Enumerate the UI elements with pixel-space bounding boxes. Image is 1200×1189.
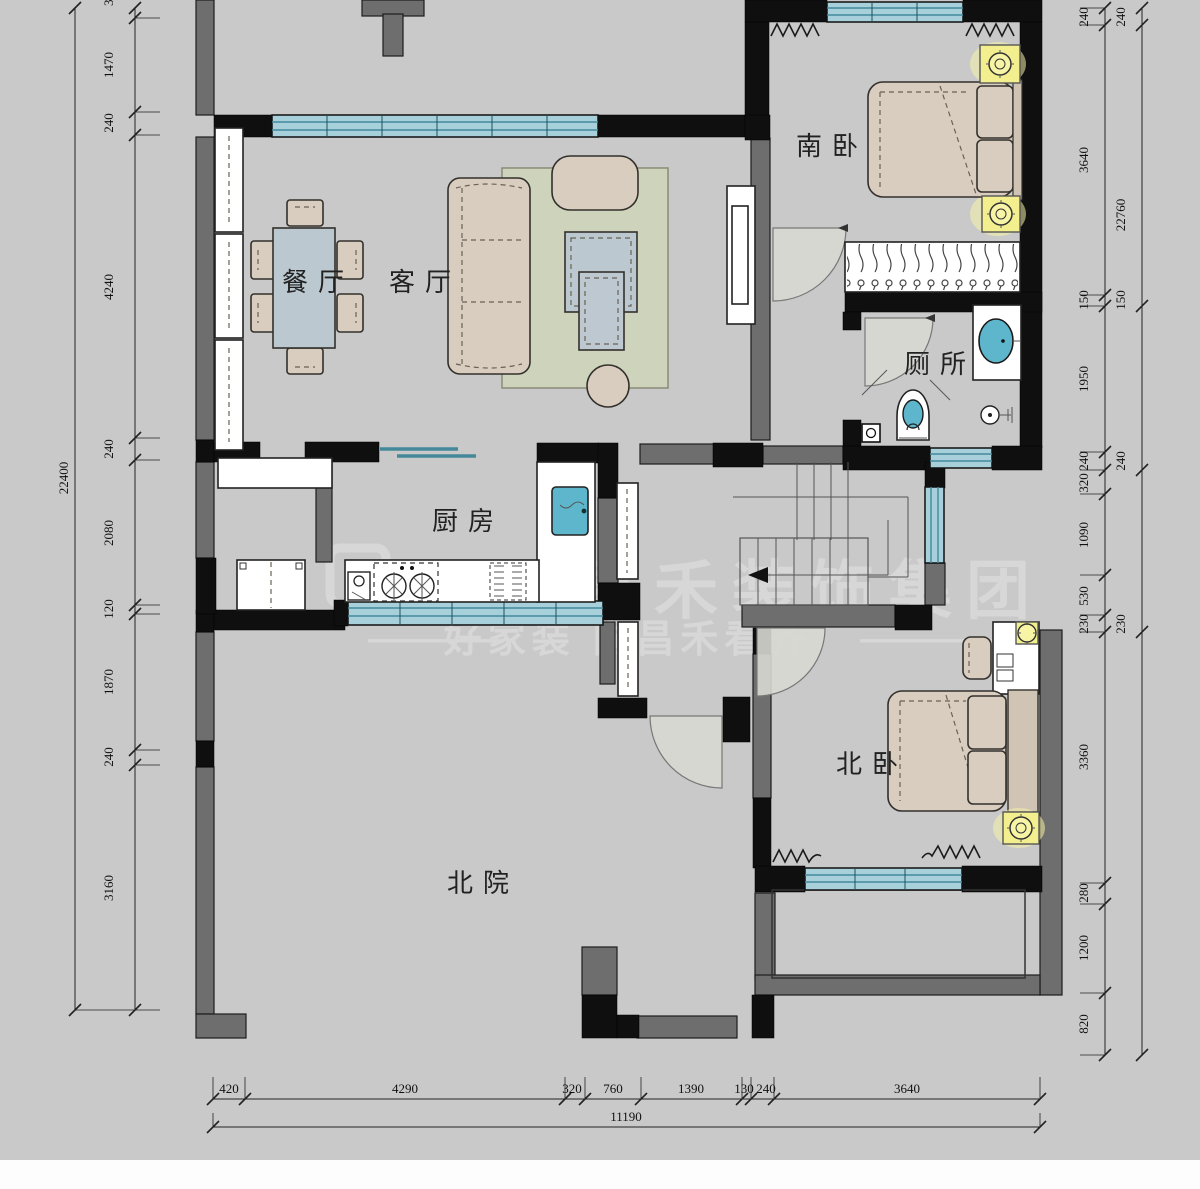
dim-label: 1470: [101, 52, 116, 78]
gas-stove-icon: [374, 563, 438, 601]
floor-plan: 昌禾装饰集团 ———— 好家装 向昌禾看齐 ————: [0, 0, 1200, 1189]
toilet-window: [930, 448, 992, 468]
dimension-chain-right-outer: 240 22760 150 240 230: [1113, 2, 1148, 1061]
dim-label: 3360: [1076, 744, 1091, 770]
dim-label: 240: [101, 113, 116, 133]
fridge-icon: [237, 560, 305, 610]
dimension-chain-left: 22400 320 1470 240 4240 240 2080 120 187…: [56, 0, 160, 1016]
dim-label: 4290: [392, 1081, 418, 1096]
living-furniture: [448, 156, 755, 407]
dim-label: 230: [1076, 614, 1091, 634]
nightstand-icon: [1003, 812, 1039, 844]
dim-label: 320: [562, 1081, 582, 1096]
toilet-icon: [897, 390, 929, 440]
living-window: [272, 115, 598, 137]
insulation-hatch-icon: [771, 24, 819, 36]
floor-plan-page: 昌禾装饰集团 ———— 好家装 向昌禾看齐 ————: [0, 0, 1200, 1189]
insulation-hatch-icon: [922, 846, 980, 858]
desk-chair-icon: [963, 637, 991, 679]
dim-label: 230: [1113, 614, 1128, 634]
dim-label: 1090: [1076, 522, 1091, 548]
kitchen-sink-icon: [552, 487, 588, 535]
dim-label: 1870: [101, 669, 116, 695]
living-room-label: 客厅: [389, 268, 461, 297]
lamp-icon: [990, 203, 1012, 225]
dim-label: 3640: [1076, 147, 1091, 173]
dim-label: 240: [1113, 451, 1128, 471]
south-bedroom-door-icon: [773, 228, 846, 301]
dim-label: 240: [756, 1081, 776, 1096]
dining-room-label: 餐厅: [282, 268, 354, 297]
kitchen-label: 厨房: [432, 507, 504, 536]
dim-label: 2080: [101, 520, 116, 546]
north-bedroom-door-icon: [757, 628, 825, 696]
ottoman-icon: [552, 156, 638, 210]
pillow-icon: [977, 140, 1013, 192]
dim-label: 1200: [1076, 935, 1091, 961]
pillow-icon: [968, 751, 1006, 804]
south-bedroom-label: 南卧: [796, 132, 868, 161]
washbasin-icon: [973, 305, 1021, 380]
dim-label: 1390: [678, 1081, 704, 1096]
dim-left-overall: 22400: [56, 462, 71, 495]
kitchen-fixtures: [218, 449, 595, 610]
dim-label: 1950: [1076, 366, 1091, 392]
dim-label: 3640: [894, 1081, 920, 1096]
dimension-chain-bottom: 420 4290 320 760 1390 130 240 3640 11190: [207, 1077, 1046, 1133]
dimension-chain-right-inner: 240 3640 150 1950 240 320 1090 530 230 3…: [1076, 2, 1111, 1061]
nightstand-icon: [980, 45, 1020, 83]
double-bed-icon: [888, 690, 1038, 812]
north-yard-label: 北院: [447, 869, 519, 898]
north-bedroom-label: 北卧: [836, 750, 908, 779]
dim-label: 240: [101, 439, 116, 459]
insulation-hatch-icon: [773, 850, 821, 862]
dim-left-clipped: 320: [101, 0, 116, 6]
dim-label: 150: [1113, 290, 1128, 310]
tall-cabinet-icon: [215, 128, 243, 450]
floor-drain-icon: [862, 424, 880, 442]
dim-label: 760: [603, 1081, 623, 1096]
wardrobe-icon: [845, 242, 1020, 292]
dim-label: 150: [1076, 290, 1091, 310]
storage-counter-icon: [218, 458, 332, 488]
lamp-icon: [1010, 817, 1032, 839]
insulation-hatch-icon: [966, 24, 1014, 36]
dim-label: 240: [1076, 451, 1091, 471]
south-bedroom-furniture: [845, 42, 1026, 292]
dim-right-overall: 22760: [1113, 199, 1128, 232]
dim-label: 3160: [101, 875, 116, 901]
pouf-icon: [587, 365, 629, 407]
pillow-icon: [977, 86, 1013, 138]
stair-window: [925, 487, 944, 563]
dim-bottom-overall: 11190: [610, 1109, 642, 1124]
dim-label: 240: [1113, 7, 1128, 27]
lamp-icon: [989, 53, 1011, 75]
shower-icon: [981, 406, 1012, 424]
dim-label: 130: [734, 1081, 754, 1096]
yard-door-icon: [650, 716, 722, 788]
range-hood-icon: [380, 449, 476, 456]
toilet-label: 厕所: [904, 350, 976, 379]
north-bedroom-window: [805, 868, 962, 890]
dim-label: 530: [1076, 586, 1091, 606]
dim-label: 280: [1076, 883, 1091, 903]
kitchen-window: [348, 601, 603, 625]
dim-label: 240: [101, 747, 116, 767]
dim-label: 420: [219, 1081, 239, 1096]
pillow-icon: [968, 696, 1006, 749]
south-bedroom-window: [827, 2, 963, 22]
dim-label: 4240: [101, 274, 116, 300]
gas-meter-icon: [348, 572, 370, 600]
dim-label: 320: [1076, 473, 1091, 493]
dim-label: 120: [101, 599, 116, 619]
tv-cabinet-icon: [727, 186, 755, 324]
dim-label: 820: [1076, 1014, 1091, 1034]
page-margin: [0, 1160, 1200, 1189]
double-bed-icon: [868, 80, 1022, 200]
desk-icon: [993, 622, 1039, 694]
dim-label: 240: [1076, 7, 1091, 27]
nightstand-icon: [982, 196, 1020, 232]
